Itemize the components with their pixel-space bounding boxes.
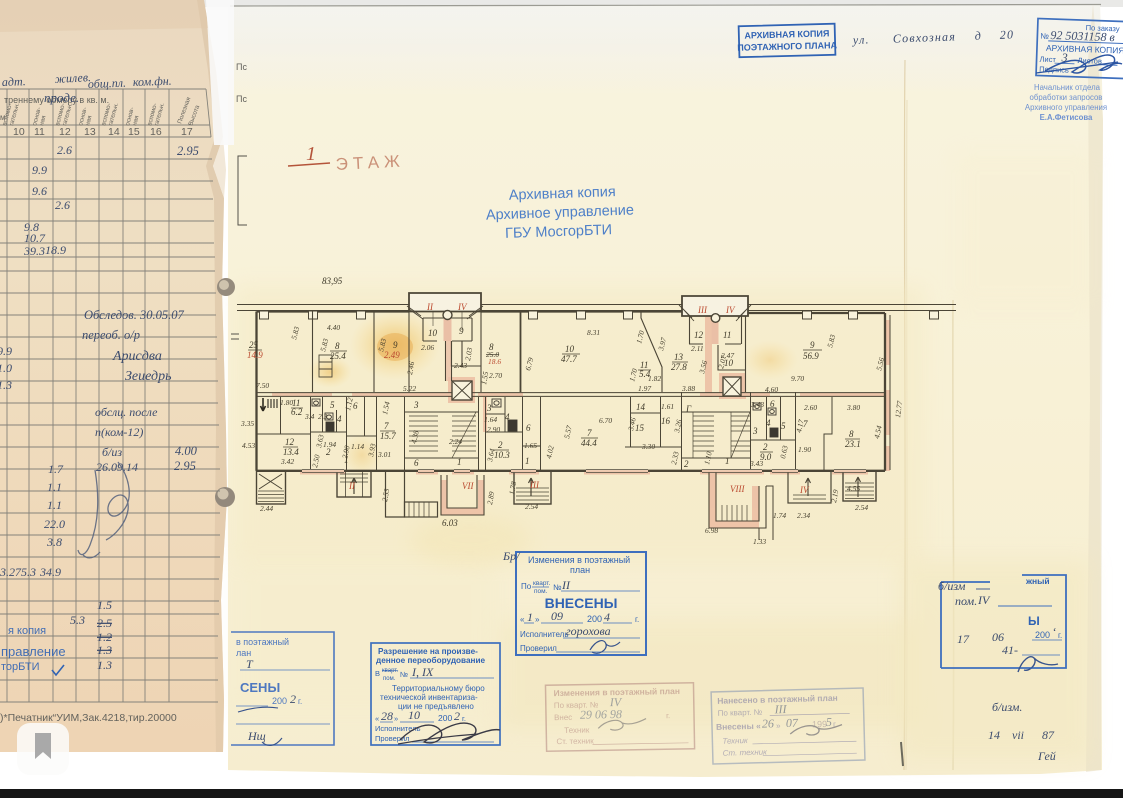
svg-text:ком.фн.: ком.фн. xyxy=(133,74,172,89)
svg-text:25.4: 25.4 xyxy=(330,351,346,361)
svg-text:пом.: пом. xyxy=(534,588,548,595)
svg-text:18.6: 18.6 xyxy=(488,357,501,366)
svg-text:1.3: 1.3 xyxy=(0,378,12,392)
svg-text:3: 3 xyxy=(413,400,419,410)
svg-text:4.53: 4.53 xyxy=(242,441,255,450)
svg-text:16: 16 xyxy=(150,126,162,138)
svg-text:11: 11 xyxy=(34,126,45,138)
svg-text:10: 10 xyxy=(428,328,438,338)
svg-text:»: » xyxy=(394,714,398,723)
svg-text:56.9: 56.9 xyxy=(803,351,819,361)
svg-text:4.40: 4.40 xyxy=(327,323,340,332)
svg-text:17: 17 xyxy=(181,126,193,138)
svg-text:75.3: 75.3 xyxy=(15,565,36,579)
svg-text:обработки запросов: обработки запросов xyxy=(1030,93,1103,102)
svg-text:9.70: 9.70 xyxy=(791,374,804,383)
svg-text:II: II xyxy=(348,481,356,491)
svg-text:Г: Г xyxy=(685,404,692,414)
svg-text:III: III xyxy=(697,305,708,315)
svg-text:1.74: 1.74 xyxy=(773,511,786,520)
svg-text:Пс: Пс xyxy=(236,94,247,104)
svg-text:83,95: 83,95 xyxy=(322,276,343,286)
svg-text:По кварт. №: По кварт. № xyxy=(718,708,763,718)
svg-text:10: 10 xyxy=(408,708,420,722)
svg-text:№: № xyxy=(400,670,408,679)
svg-text:1.7: 1.7 xyxy=(48,462,64,476)
svg-text:Зеиедрь: Зеиедрь xyxy=(125,369,171,384)
svg-text:2.90: 2.90 xyxy=(487,425,500,434)
svg-text:8: 8 xyxy=(849,429,854,439)
svg-text:Пс: Пс xyxy=(236,62,247,72)
svg-text:2.49: 2.49 xyxy=(384,350,400,360)
svg-text:2.11: 2.11 xyxy=(691,344,704,353)
svg-text:3.88: 3.88 xyxy=(681,384,695,393)
svg-text:»: » xyxy=(535,615,540,624)
svg-text:план: план xyxy=(570,565,590,575)
svg-text:26.09.14: 26.09.14 xyxy=(96,460,138,474)
svg-text:29 06 98: 29 06 98 xyxy=(580,707,622,722)
svg-text:1.5: 1.5 xyxy=(97,598,112,612)
svg-text:2.5: 2.5 xyxy=(97,616,112,630)
svg-text:2.54: 2.54 xyxy=(855,503,868,512)
svg-text:Бр/: Бр/ xyxy=(502,549,521,563)
svg-text:Лист: Лист xyxy=(1039,55,1056,65)
svg-text:IV: IV xyxy=(799,485,810,495)
svg-text:Техник: Техник xyxy=(564,726,590,735)
svg-text:Начальник отдела: Начальник отдела xyxy=(1034,83,1101,92)
svg-text:технической инвентариза-: технической инвентариза- xyxy=(380,693,478,702)
svg-text:б/из: б/из xyxy=(102,445,122,459)
svg-text:8: 8 xyxy=(335,341,340,351)
svg-text:1.61: 1.61 xyxy=(661,402,674,411)
svg-text:2.44: 2.44 xyxy=(260,504,273,513)
svg-text:4.55: 4.55 xyxy=(847,484,860,493)
svg-text:8.31: 8.31 xyxy=(587,328,600,337)
svg-text:1.1: 1.1 xyxy=(47,480,62,494)
svg-text:2.70: 2.70 xyxy=(489,371,502,380)
svg-text:10.7: 10.7 xyxy=(24,231,46,245)
svg-text:2.43: 2.43 xyxy=(454,361,467,370)
svg-text:Ы: Ы xyxy=(1028,614,1040,628)
svg-text:№: № xyxy=(1040,32,1049,41)
svg-text:Архивного управления: Архивного управления xyxy=(1025,103,1107,112)
svg-text:199: 199 xyxy=(812,719,827,729)
svg-text:Е.А.Фетисова: Е.А.Фетисова xyxy=(1040,113,1093,122)
svg-text:18.9: 18.9 xyxy=(45,243,66,257)
svg-text:17: 17 xyxy=(957,632,970,646)
svg-text:VIII: VIII xyxy=(730,484,745,494)
svg-text:9.6: 9.6 xyxy=(32,184,47,198)
svg-text:III: III xyxy=(773,702,787,716)
svg-text:Территориальному бюро: Территориальному бюро xyxy=(392,684,485,693)
svg-text:3: 3 xyxy=(752,426,758,436)
svg-text:жный: жный xyxy=(1025,576,1050,586)
svg-text:IV: IV xyxy=(725,305,736,315)
svg-text:6: 6 xyxy=(770,399,775,409)
svg-text:4.00: 4.00 xyxy=(175,444,198,458)
svg-text:№: № xyxy=(553,583,562,592)
svg-text:1: 1 xyxy=(725,456,730,466)
svg-text:»: » xyxy=(776,721,781,730)
svg-text:9.9: 9.9 xyxy=(32,163,47,177)
svg-text:‘: ‘ xyxy=(1052,625,1056,639)
svg-text:Исполнитель: Исполнитель xyxy=(375,724,421,733)
svg-text:г.: г. xyxy=(462,714,466,723)
svg-text:2: 2 xyxy=(290,692,296,706)
svg-text:41-: 41- xyxy=(1002,643,1018,657)
svg-text:я копия: я копия xyxy=(8,625,46,637)
svg-text:Гей: Гей xyxy=(1037,749,1056,763)
svg-text:IV: IV xyxy=(457,302,468,312)
svg-text:1.3: 1.3 xyxy=(97,643,112,657)
svg-text:пом.: пом. xyxy=(383,676,396,682)
svg-text:3.01: 3.01 xyxy=(377,450,391,459)
svg-text:2.6: 2.6 xyxy=(57,143,72,157)
svg-text:6.70: 6.70 xyxy=(599,416,612,425)
svg-text:2.3: 2.3 xyxy=(318,412,328,421)
svg-text:10: 10 xyxy=(13,126,25,138)
svg-text:07: 07 xyxy=(786,716,799,730)
svg-text:2: 2 xyxy=(498,440,503,450)
svg-text:горохова: горохова xyxy=(566,624,611,638)
svg-text:2.95: 2.95 xyxy=(177,144,199,158)
svg-text:1.0: 1.0 xyxy=(0,361,12,375)
svg-text:2: 2 xyxy=(326,447,331,457)
svg-text:IV: IV xyxy=(977,593,991,607)
svg-text:б/изм.: б/изм. xyxy=(992,700,1022,714)
svg-text:правление: правление xyxy=(1,644,66,659)
svg-text:5.3: 5.3 xyxy=(70,613,85,627)
svg-text:1.82: 1.82 xyxy=(648,374,661,383)
svg-text:1.3: 1.3 xyxy=(97,658,112,672)
svg-text:адт.: адт. xyxy=(2,74,26,89)
svg-text:28: 28 xyxy=(381,709,393,723)
svg-text:1: 1 xyxy=(306,143,316,165)
svg-text:22.0: 22.0 xyxy=(44,517,65,531)
svg-text:2.54: 2.54 xyxy=(525,502,538,511)
svg-text:1.1: 1.1 xyxy=(47,498,62,512)
svg-text:пом.: пом. xyxy=(955,594,977,608)
svg-text:1.64: 1.64 xyxy=(484,415,497,424)
svg-text:1: 1 xyxy=(525,456,530,466)
svg-text:По: По xyxy=(521,582,532,591)
svg-text:7.50: 7.50 xyxy=(256,381,269,390)
svg-text:14.9: 14.9 xyxy=(247,350,263,360)
svg-text:1.90: 1.90 xyxy=(798,445,811,454)
svg-text:I, IX: I, IX xyxy=(411,665,434,679)
svg-text:4: 4 xyxy=(337,414,342,424)
svg-text:13: 13 xyxy=(84,126,96,138)
svg-text:14: 14 xyxy=(636,402,646,412)
svg-text:5.22: 5.22 xyxy=(403,384,416,393)
svg-text:Ст. техник: Ст. техник xyxy=(556,736,594,746)
svg-text:торБТИ: торБТИ xyxy=(1,661,40,673)
svg-text:14: 14 xyxy=(108,126,120,138)
svg-text:СЕНЫ: СЕНЫ xyxy=(240,680,280,695)
svg-text:12: 12 xyxy=(285,437,295,447)
svg-text:II: II xyxy=(426,302,434,312)
svg-text:в поэтажный: в поэтажный xyxy=(236,637,289,647)
svg-text:44.4: 44.4 xyxy=(581,438,597,448)
svg-text:7: 7 xyxy=(803,419,808,429)
svg-text:12: 12 xyxy=(59,126,71,138)
svg-text:16: 16 xyxy=(661,416,671,426)
svg-text:Внесены «: Внесены « xyxy=(716,721,761,732)
svg-text:06: 06 xyxy=(992,630,1004,644)
svg-text:3.43: 3.43 xyxy=(750,400,764,409)
svg-text:1.33: 1.33 xyxy=(753,537,766,546)
svg-text:3.4: 3.4 xyxy=(304,412,315,421)
svg-text:2.34: 2.34 xyxy=(797,511,810,520)
svg-text:3.43: 3.43 xyxy=(749,459,763,468)
svg-text:6: 6 xyxy=(526,423,531,433)
svg-text:39.3: 39.3 xyxy=(23,244,45,258)
svg-text:2.60: 2.60 xyxy=(804,403,817,412)
svg-text:200: 200 xyxy=(1035,630,1050,640)
svg-text:6: 6 xyxy=(414,458,419,468)
svg-text:4.60: 4.60 xyxy=(765,385,778,394)
svg-text:27.8: 27.8 xyxy=(671,362,687,372)
svg-text:3.8: 3.8 xyxy=(46,535,62,549)
svg-text:4: 4 xyxy=(766,418,771,428)
svg-text:г.: г. xyxy=(298,697,302,706)
svg-text:3.35: 3.35 xyxy=(240,419,254,428)
svg-text:проде.: проде. xyxy=(44,90,79,105)
svg-text:г.: г. xyxy=(1058,631,1062,640)
svg-text:4: 4 xyxy=(505,412,510,422)
svg-text:кварт.: кварт. xyxy=(533,580,551,587)
svg-text:1.97: 1.97 xyxy=(638,384,651,393)
svg-text:)*Печатник“УИМ,Зак.4218,тир.20: )*Печатник“УИМ,Зак.4218,тир.20000 xyxy=(0,712,177,724)
svg-text:Разрешение на произве-: Разрешение на произве- xyxy=(378,647,478,656)
svg-text:6.98: 6.98 xyxy=(705,526,718,535)
svg-text:Изменения в поэтажный: Изменения в поэтажный xyxy=(528,555,630,565)
svg-text:13: 13 xyxy=(674,352,684,362)
svg-text:Ст. техник: Ст. техник xyxy=(723,748,769,758)
svg-text:п(ком-12): п(ком-12) xyxy=(95,425,143,439)
svg-text:09: 09 xyxy=(551,609,563,623)
svg-text:Нщ: Нщ xyxy=(247,729,266,743)
svg-text:200: 200 xyxy=(438,713,452,723)
svg-text:23.1: 23.1 xyxy=(845,439,861,449)
svg-text:Проверил: Проверил xyxy=(520,644,557,653)
svg-text:10: 10 xyxy=(565,344,575,354)
svg-text:2.06: 2.06 xyxy=(421,343,434,352)
svg-text:11: 11 xyxy=(723,330,731,340)
svg-text:ЭТАЖ: ЭТАЖ xyxy=(335,151,405,174)
svg-text:Техник: Техник xyxy=(722,736,749,746)
svg-text:3: 3 xyxy=(486,403,492,413)
svg-text:2: 2 xyxy=(763,442,768,452)
svg-text:6.2: 6.2 xyxy=(291,407,303,417)
svg-text:2: 2 xyxy=(684,459,689,469)
svg-text:3.42: 3.42 xyxy=(280,457,294,466)
svg-text:жилев.: жилев. xyxy=(54,70,91,86)
svg-text:14 vii 87: 14 vii 87 xyxy=(988,728,1055,742)
svg-text:3.2: 3.2 xyxy=(0,565,15,579)
svg-text:II: II xyxy=(561,578,571,592)
svg-text:9: 9 xyxy=(459,326,464,336)
svg-text:9: 9 xyxy=(393,340,398,350)
svg-text:25: 25 xyxy=(249,340,259,350)
svg-text:2: 2 xyxy=(454,709,460,723)
svg-text:переоб. о/р: переоб. о/р xyxy=(82,328,140,342)
svg-text:3.30: 3.30 xyxy=(641,442,655,451)
svg-text:г.: г. xyxy=(635,615,639,624)
svg-text:9: 9 xyxy=(810,340,815,350)
svg-text:200: 200 xyxy=(587,614,602,624)
svg-text:1: 1 xyxy=(344,455,349,465)
svg-text:денное переоборудование: денное переоборудование xyxy=(376,655,485,665)
svg-text:9.9: 9.9 xyxy=(0,344,12,358)
svg-text:7: 7 xyxy=(587,428,592,438)
svg-text:б/изм: б/изм xyxy=(938,579,966,593)
svg-text:15.7: 15.7 xyxy=(380,431,396,441)
svg-text:«: « xyxy=(375,714,379,723)
svg-text:6.03: 6.03 xyxy=(442,518,458,528)
svg-text:Исполнитель: Исполнитель xyxy=(520,630,569,639)
svg-text:Внес: Внес xyxy=(554,713,572,722)
svg-text:12: 12 xyxy=(694,330,704,340)
svg-text:5: 5 xyxy=(330,400,335,410)
svg-text:2.24: 2.24 xyxy=(449,437,462,446)
svg-text:5: 5 xyxy=(826,715,832,729)
svg-text:2.6: 2.6 xyxy=(55,198,70,212)
svg-text:кварт.: кварт. xyxy=(382,668,398,674)
svg-text:1.65: 1.65 xyxy=(524,441,537,450)
svg-text:13.4: 13.4 xyxy=(283,447,299,457)
svg-text:7: 7 xyxy=(384,421,389,431)
svg-text:Арисдва: Арисдва xyxy=(112,349,162,364)
svg-text:26: 26 xyxy=(762,716,774,730)
svg-text:VII: VII xyxy=(462,481,474,491)
svg-text:В: В xyxy=(375,669,380,678)
svg-text:1: 1 xyxy=(527,610,533,624)
svg-text:1: 1 xyxy=(457,457,462,467)
svg-text:1.2: 1.2 xyxy=(97,630,112,644)
svg-text:г.: г. xyxy=(666,711,670,720)
svg-text:47.7: 47.7 xyxy=(561,354,577,364)
svg-text:5: 5 xyxy=(781,421,786,431)
svg-text:2.95: 2.95 xyxy=(174,459,196,473)
svg-text:15: 15 xyxy=(128,126,140,138)
svg-text:общ.пл.: общ.пл. xyxy=(88,76,127,91)
svg-text:обслц. после: обслц. после xyxy=(95,405,158,419)
svg-text:3.80: 3.80 xyxy=(846,403,860,412)
svg-text:4: 4 xyxy=(604,610,610,624)
svg-text:10.3: 10.3 xyxy=(494,450,510,460)
svg-text:Обследов. 30.05.07: Обследов. 30.05.07 xyxy=(84,308,184,322)
svg-text:34.9: 34.9 xyxy=(39,565,61,579)
svg-text:200: 200 xyxy=(272,696,287,706)
svg-text:1.14: 1.14 xyxy=(351,442,364,451)
svg-text:III: III xyxy=(529,480,540,490)
